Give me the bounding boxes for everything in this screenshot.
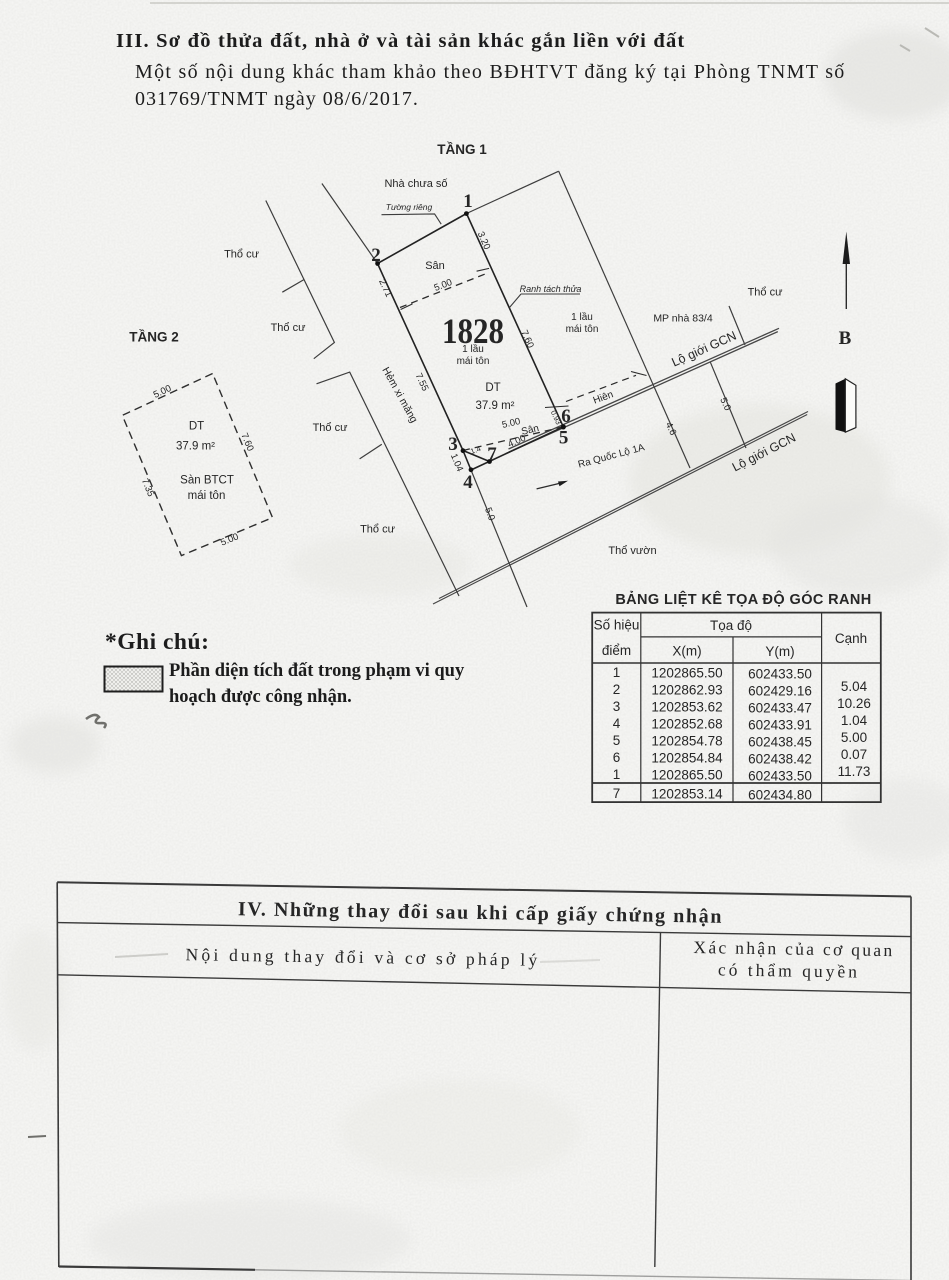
svg-text:37.9 m²: 37.9 m² [176,441,215,453]
svg-text:Hẻm xi măng: Hẻm xi măng [379,365,420,425]
svg-text:Lộ giới GCN: Lộ giới GCN [730,431,798,475]
svg-text:Thổ cư: Thổ cư [360,524,396,536]
svg-text:602438.45: 602438.45 [748,735,812,750]
svg-text:Thổ cư: Thổ cư [271,322,307,334]
svg-text:7: 7 [487,444,497,465]
svg-text:TẦNG 2: TẦNG 2 [129,330,179,345]
svg-text:Số hiệu: Số hiệu [594,618,640,633]
svg-text:Y(m): Y(m) [765,644,794,659]
svg-text:602433.50: 602433.50 [748,769,812,784]
svg-text:2.71: 2.71 [376,278,394,299]
svg-text:Ra Quốc Lộ 1A: Ra Quốc Lộ 1A [577,441,646,470]
svg-text:X(m): X(m) [672,644,701,659]
svg-text:Ranh tách thửa: Ranh tách thửa [520,284,582,294]
svg-text:2: 2 [613,682,621,697]
svg-text:1.04: 1.04 [841,713,868,728]
svg-text:11.73: 11.73 [838,764,871,779]
svg-text:Nội dung thay đổi và cơ sở phá: Nội dung thay đổi và cơ sở pháp lý [185,944,540,970]
svg-text:602433.47: 602433.47 [748,701,812,716]
svg-text:Cạnh: Cạnh [835,631,867,646]
svg-text:Thổ cư: Thổ cư [313,422,349,434]
svg-text:602429.16: 602429.16 [748,684,812,699]
svg-text:6: 6 [613,750,621,765]
svg-text:1202865.50: 1202865.50 [651,768,722,783]
svg-text:Tường riêng: Tường riêng [386,202,433,212]
svg-text:Sân: Sân [425,260,445,272]
svg-text:DT: DT [189,421,204,433]
svg-text:602434.80: 602434.80 [748,788,812,803]
svg-text:Thổ vườn: Thổ vườn [608,545,656,557]
svg-text:1 lầu: 1 lầu [462,343,484,355]
svg-text:Sàn BTCT: Sàn BTCT [180,475,234,487]
svg-text:602433.50: 602433.50 [748,667,812,682]
svg-text:602433.91: 602433.91 [748,718,812,733]
svg-text:1: 1 [613,767,621,782]
svg-text:mái tôn: mái tôn [457,356,490,367]
svg-text:IV. Những thay đổi sau khi cấp: IV. Những thay đổi sau khi cấp giấy chứn… [238,898,723,928]
svg-text:3: 3 [448,434,458,455]
svg-text:1202854.78: 1202854.78 [651,734,722,749]
svg-text:1: 1 [613,665,621,680]
svg-text:2: 2 [371,245,381,266]
svg-text:7: 7 [613,786,621,801]
svg-text:1202862.93: 1202862.93 [651,683,722,698]
svg-text:5.00: 5.00 [219,531,240,548]
svg-text:1.4: 1.4 [469,444,482,456]
svg-text:Lộ giới GCN: Lộ giới GCN [669,329,738,370]
svg-text:1: 1 [463,191,473,212]
svg-text:MP nhà 83/4: MP nhà 83/4 [653,313,713,325]
svg-text:7.35: 7.35 [139,477,156,498]
svg-text:5.00: 5.00 [501,416,522,431]
svg-text:1.04: 1.04 [448,452,465,473]
svg-text:4: 4 [613,716,621,731]
svg-text:1202865.50: 1202865.50 [651,666,722,681]
svg-text:4: 4 [463,472,473,493]
svg-text:1202853.14: 1202853.14 [651,787,723,802]
svg-text:37.9 m²: 37.9 m² [476,400,515,412]
svg-text:3.20: 3.20 [475,230,493,251]
svg-text:Tọa độ: Tọa độ [710,618,752,633]
svg-text:6: 6 [561,406,571,427]
svg-text:1202854.84: 1202854.84 [651,751,723,766]
svg-text:B: B [839,328,852,349]
svg-text:7.60: 7.60 [518,329,536,350]
svg-text:TẦNG 1: TẦNG 1 [437,142,487,157]
svg-text:1202853.62: 1202853.62 [651,700,722,715]
svg-text:5.00: 5.00 [152,383,173,401]
svg-text:5.00: 5.00 [841,730,867,745]
svg-text:5: 5 [559,428,569,449]
svg-text:5.00: 5.00 [433,277,454,294]
svg-text:mái tôn: mái tôn [188,490,226,502]
svg-text:điểm: điểm [602,643,631,658]
svg-text:5: 5 [613,733,621,748]
svg-text:Nhà chưa số: Nhà chưa số [384,178,447,190]
svg-text:có thẩm quyền: có thẩm quyền [718,959,860,981]
svg-text:5.04: 5.04 [841,679,868,694]
svg-text:Thổ cư: Thổ cư [748,287,784,299]
svg-text:BẢNG LIỆT KÊ TỌA ĐỘ GÓC RANH: BẢNG LIỆT KÊ TỌA ĐỘ GÓC RANH [615,590,871,608]
svg-text:3: 3 [613,699,621,714]
svg-text:10.26: 10.26 [837,696,871,711]
svg-text:602438.42: 602438.42 [748,752,812,767]
svg-text:1202852.68: 1202852.68 [651,717,722,732]
svg-text:Thổ cư: Thổ cư [224,249,260,261]
svg-text:4.6: 4.6 [663,421,679,438]
svg-text:Xác nhận của cơ quan: Xác nhận của cơ quan [693,937,894,960]
svg-text:0.07: 0.07 [841,747,867,762]
svg-text:mái tôn: mái tôn [566,324,599,335]
svg-text:Hiên: Hiên [592,389,615,406]
svg-text:1 lầu: 1 lầu [571,311,593,323]
svg-text:DT: DT [485,382,500,394]
svg-text:5.0: 5.0 [482,506,497,522]
